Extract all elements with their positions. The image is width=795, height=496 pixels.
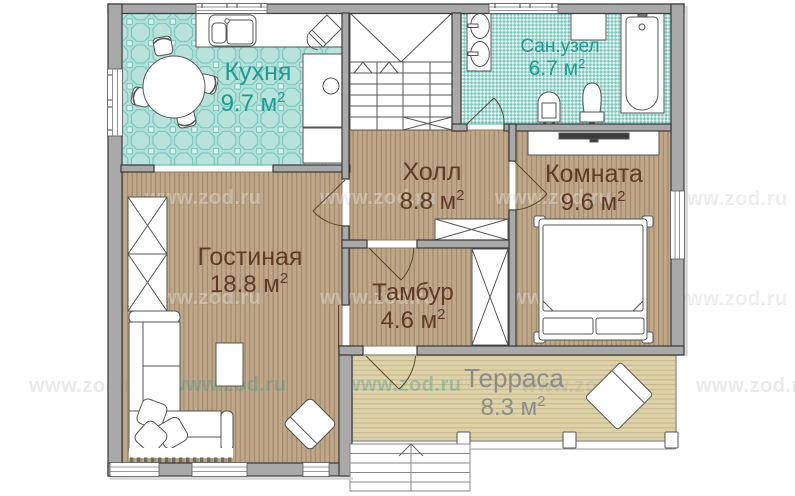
svg-text:Холл: Холл [403,158,462,186]
svg-text:8.3 м2: 8.3 м2 [481,393,546,421]
svg-text:4.6 м2: 4.6 м2 [381,306,446,334]
svg-text:8.8 м2: 8.8 м2 [400,187,465,215]
svg-text:Сан.узел: Сан.узел [520,36,599,57]
svg-text:www.zod.ru: www.zod.ru [28,375,145,397]
svg-text:6.7 м2: 6.7 м2 [529,56,586,80]
svg-text:www.zod.ru: www.zod.ru [695,375,795,397]
svg-text:9.6 м2: 9.6 м2 [561,188,626,216]
svg-text:18.8 м2: 18.8 м2 [210,270,288,298]
svg-text:Комната: Комната [545,160,643,188]
svg-text:9.7 м2: 9.7 м2 [221,89,286,117]
svg-text:Тамбур: Тамбур [372,279,453,306]
svg-text:Гостиная: Гостиная [198,243,303,271]
svg-text:Терраса: Терраса [464,363,564,393]
svg-text:Кухня: Кухня [225,58,292,86]
